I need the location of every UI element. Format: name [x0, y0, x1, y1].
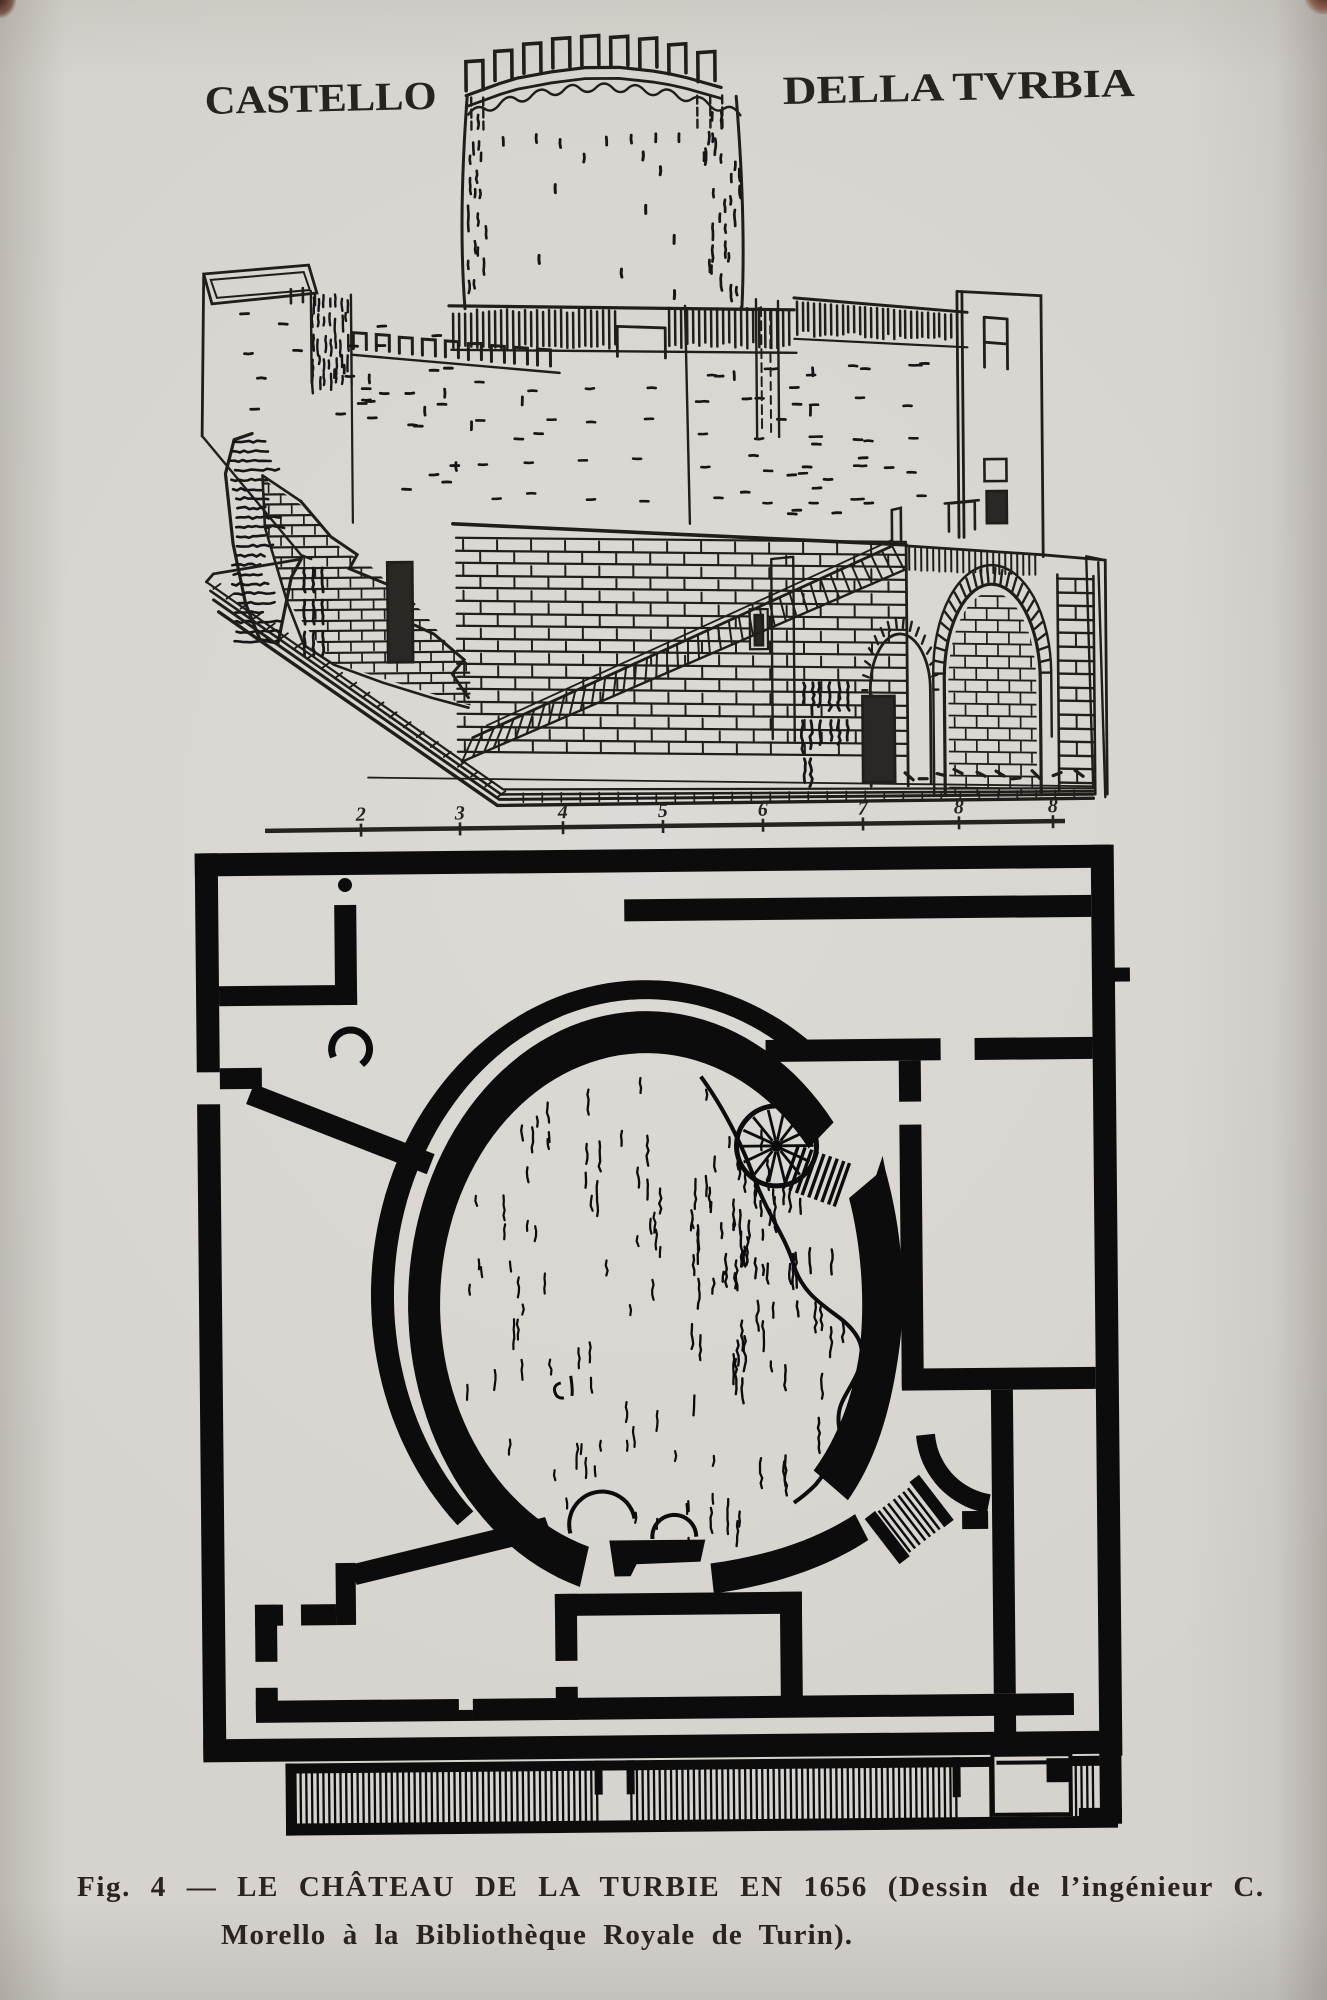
svg-text:4: 4 [557, 801, 568, 823]
svg-text:8: 8 [1048, 795, 1058, 817]
svg-text:6: 6 [758, 799, 768, 821]
svg-text:5: 5 [658, 800, 668, 822]
svg-text:Morello à la Bibliothèque Roya: Morello à la Bibliothèque Royale de Turi… [221, 1919, 853, 1951]
svg-text:Fig. 4 — LE CHÂTEAU DE LA TURB: Fig. 4 — LE CHÂTEAU DE LA TURBIE EN 1656… [77, 1870, 1265, 1903]
svg-text:3: 3 [454, 802, 465, 824]
svg-text:2: 2 [355, 804, 366, 826]
svg-text:8: 8 [954, 796, 964, 818]
svg-text:DELLA TVRBIA: DELLA TVRBIA [782, 60, 1135, 113]
svg-text:7: 7 [858, 797, 869, 819]
svg-text:CASTELLO: CASTELLO [204, 73, 437, 123]
